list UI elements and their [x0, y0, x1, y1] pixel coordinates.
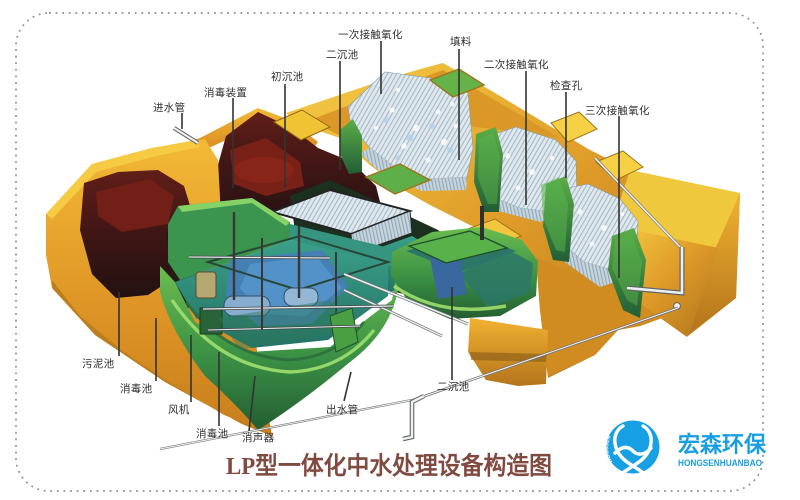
svg-text:消毒装置: 消毒装置	[204, 86, 247, 99]
svg-text:消毒池: 消毒池	[196, 427, 229, 440]
svg-text:初沉池: 初沉池	[271, 70, 304, 83]
svg-text:LP型一体化中水处理设备构造图: LP型一体化中水处理设备构造图	[226, 451, 552, 480]
svg-text:三次接触氧化: 三次接触氧化	[585, 104, 650, 117]
svg-text:宏森环保: 宏森环保	[678, 432, 767, 457]
svg-text:出水管: 出水管	[326, 403, 358, 416]
svg-text:检查孔: 检查孔	[550, 79, 583, 92]
svg-text:消毒池: 消毒池	[120, 382, 153, 395]
svg-text:二沉池: 二沉池	[437, 380, 470, 393]
svg-text:进水管: 进水管	[153, 101, 185, 114]
svg-text:HONGSENHUANBAO: HONGSENHUANBAO	[678, 458, 762, 468]
svg-text:填料: 填料	[450, 35, 472, 48]
svg-text:风机: 风机	[168, 403, 190, 416]
svg-text:消声器: 消声器	[242, 431, 275, 444]
svg-text:二沉池: 二沉池	[326, 48, 359, 61]
svg-text:二次接触氧化: 二次接触氧化	[484, 58, 549, 71]
svg-text:一次接触氧化: 一次接触氧化	[338, 28, 403, 41]
svg-text:污泥池: 污泥池	[82, 357, 115, 370]
